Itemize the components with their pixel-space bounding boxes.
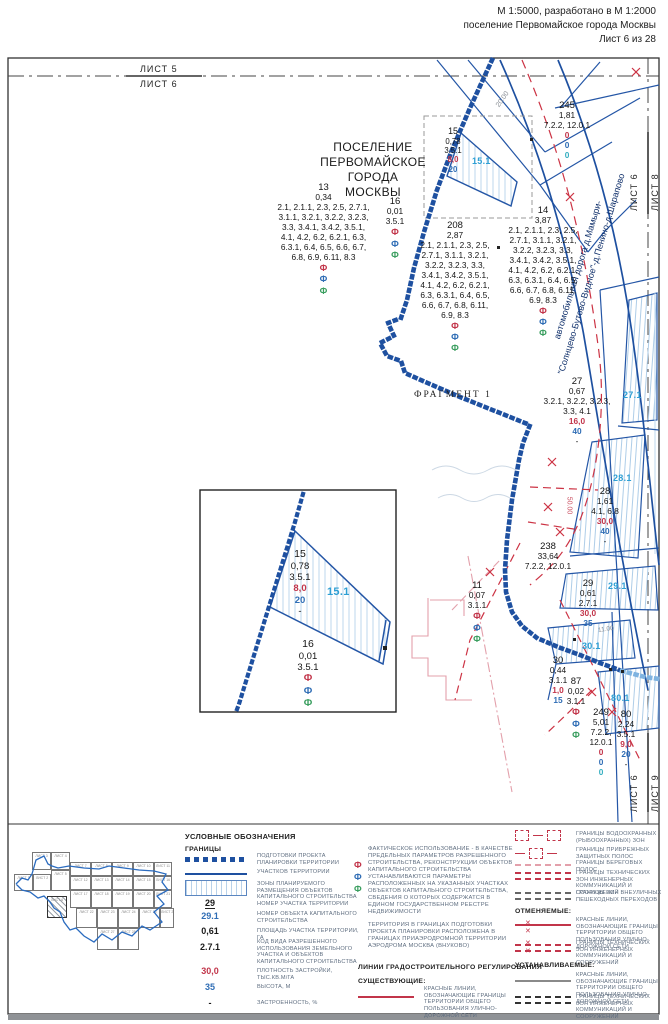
sheet-index-cell: ЛИСТ 23 [97,908,118,928]
sheet-index-cell: ЛИСТ 13 [91,876,112,890]
sheet-index-cell: ЛИСТ 22 [76,908,97,928]
sheet-index-cell: ЛИСТ 20 [133,890,154,908]
legend-symbol-pedestrian-zone [515,892,571,900]
sheet-index-cell: ЛИСТ 8 [91,862,112,876]
sheet-index-cell: ЛИСТ 27 [97,928,118,950]
edge-label-list6-top: ЛИСТ 6 [140,79,178,89]
parcel-245-label: 245 1,81 7.2.2, 12.0.1 0 0 0 [531,100,603,161]
sheet-index-cell: ЛИСТ 6 [47,896,67,918]
legend-symbol-coastal-protect [515,848,571,859]
sheet-index-cell: ЛИСТ 12 [70,876,91,890]
legend-label-plot-number: НОМЕР УЧАСТКА ТЕРРИТОРИИ [257,901,362,908]
zone-29-1-label: 29.1 [608,581,627,591]
sheet-index-map: ЛИСТ 3ЛИСТ 4ЛИСТ 1ЛИСТ 2ЛИСТ 5ЛИСТ 6ЛИСТ… [14,844,176,956]
legend-symbol-red-lines-existing [358,996,414,998]
sheet-index-cell: ЛИСТ 28 [118,928,139,950]
legend-fact-symbol-red: Ф [354,860,362,871]
legend-symbol-shore-strip [515,864,571,866]
legend-symbol-tech-zone-established [515,996,571,1004]
legend-label-tech-zone-established: ГРАНИЦЫ ТЕХНИЧЕСКИХ ЗОН ИНЖЕНЕРНЫХ КОММУ… [576,994,662,1021]
zone-30-1-label: 30.1 [582,641,601,651]
sheet-index-cell: ЛИСТ 3 [32,852,51,870]
legend-panel: ЛИСТ 3ЛИСТ 4ЛИСТ 1ЛИСТ 2ЛИСТ 5ЛИСТ 6ЛИСТ… [8,824,659,1014]
fact-symbol-height: Ф [276,274,371,285]
legend-sample-density: 30,0 [190,966,230,976]
terrain-lines [432,466,516,502]
legend-symbol-tech-zone-existing [515,872,571,880]
parcel-80-label: 80 2,24 3.5.1 9,0 20 - [606,709,646,770]
legend-label-density: ПЛОТНОСТЬ ЗАСТРОЙКИ, ТЫС.КВ.М/ГА [257,968,362,981]
sheet-index-cell: ЛИСТ 19 [112,890,133,908]
sheet-index-cell: ЛИСТ 21 [154,890,172,908]
legend-symbol-territory-plots [185,873,247,875]
sheet-index-cell: ЛИСТ 24 [118,908,139,928]
legend-symbol-tech-zone-cancelled [515,944,571,952]
sheet-index-cell: ЛИСТ 7 [70,862,91,876]
sheet-index-cell: ЛИСТ 11 [154,862,172,876]
legend-sample-use-code: 2.7.1 [190,942,230,952]
parcel-13-label: 13 0,34 2.1, 2.1.1, 2.3, 2.5, 2.7.1, 3.1… [276,182,371,297]
legend-label-object-number: НОМЕР ОБЪЕКТА КАПИТАЛЬНОГО СТРОИТЕЛЬСТВА [257,911,362,924]
plan-sheet: М 1:5000, разработано в М 1:2000 поселен… [0,0,668,1024]
dimension-20: 20.00 [495,90,511,108]
legend-title: УСЛОВНЫЕ ОБОЗНАЧЕНИЯ [185,832,296,841]
sheet-index-cell: ЛИСТ 18 [91,890,112,908]
header-scale: М 1:5000, разработано в М 1:2000 [464,5,656,19]
zone-28-1-label: 28.1 [613,473,632,483]
legend-label-coastal-protect: ГРАНИЦЫ ПРИБРЕЖНЫХ ЗАЩИТНЫХ ПОЛОС [576,847,662,860]
legend-symbol-construction-zone [185,880,247,896]
parcel-14-label: 14 3,87 2.1, 2.1.1, 2.3, 2.5, 2.7.1, 3.1… [503,205,583,340]
legend-sample-height: 35 [190,982,230,992]
legend-cancelled-heading: ОТМЕНЯЕМЫЕ: [515,908,571,915]
legend-existing-heading: СУЩЕСТВУЮЩИЕ: [358,978,426,985]
legend-fact-text: ФАКТИЧЕСКОЕ ИСПОЛЬЗОВАНИЕ - В КАЧЕСТВЕ П… [368,846,513,916]
sheet-index-cell: ЛИСТ 1 [14,874,33,891]
legend-sample-built: - [190,998,230,1008]
sheet-index-cell: ЛИСТ 4 [51,852,70,870]
legend-symbol-water-zone [515,830,571,841]
inset-parcel-16-label: 16 0,01 3.5.1 Ф Ф Ф [286,638,330,711]
legend-symbol-red-lines-cancelled [515,924,571,926]
parcel-11-label: 11 0,07 3.1.1 Ф Ф Ф [457,580,497,645]
zone-15-1-label: 15.1 [472,156,491,166]
legend-established-heading: УСТАНАВЛИВАЕМЫЕ: [515,962,595,969]
legend-fact-symbol-green: Ф [354,884,362,895]
parcel-16-label: 16 0,01 3.5.1 Ф Ф Ф [375,196,415,261]
parcel-28-label: 28 1,61 4.1, 6.8 30,0 40 - [580,486,630,547]
legend-fact-symbol-blue: Ф [354,872,362,883]
legend-label-territory-plots: УЧАСТКОВ ТЕРРИТОРИИ [257,869,362,876]
dimension-50: 50.00 [565,497,572,515]
parcel-29-label: 29 0,61 2.7.1 30,0 35 [568,578,608,629]
inset-parcel-15-label: 15 0,78 3.5.1 8,0 20 - [278,548,322,618]
legend-sample-area: 0,61 [190,926,230,936]
parcel-27-label: 27 0,67 3.2.1, 3.2.2, 3.2.3, 3.3, 4.1 16… [542,376,612,447]
sheet-header: М 1:5000, разработано в М 1:2000 поселен… [464,5,656,47]
fact-symbol-built: Ф [276,286,371,297]
sheet-index-cell: ЛИСТ 16 [154,876,172,890]
legend-sample-plot-number: 29 [205,898,215,909]
legend-label-construction-zone: ЗОНЫ ПЛАНИРУЕМОГО РАЗМЕЩЕНИЯ ОБЪЕКТОВ КА… [257,881,362,901]
legend-symbol-red-lines-established [515,980,571,982]
sheet-index-cell: ЛИСТ 14 [112,876,133,890]
parcel-238-label: 238 33,64 7.2.2, 12.0.1 [523,541,573,572]
sheet-index-cell: ЛИСТ 5 [51,870,70,891]
sheet-index-cell: ЛИСТ 15 [133,876,154,890]
zone-80-1-label: 80.1 [611,693,630,703]
zone-27-1-label: 27.1 [623,390,642,400]
legend-sample-object-number: 29.1 [190,911,230,921]
sheet-index-cell: ЛИСТ 10 [133,862,154,876]
parcel-208-label: 208 2,87 2.1, 2.1.1, 2.3, 2.5, 2.7.1, 3.… [415,220,495,355]
header-settlement: поселение Первомайское города Москвы [464,19,656,33]
fact-symbol-density: Ф [276,263,371,274]
edge-label-list5: ЛИСТ 5 [140,64,178,74]
legend-borders-heading: ГРАНИЦЫ [185,846,221,853]
legend-label-use-code: КОД ВИДА РАЗРЕШЕННОГО ИСПОЛЬЗОВАНИЯ ЗЕМЕ… [257,939,365,966]
legend-label-project-boundary: ПОДГОТОВКИ ПРОЕКТА ПЛАНИРОВКИ ТЕРРИТОРИИ [257,853,362,866]
legend-label-built: ЗАСТРОЕННОСТЬ, % [257,1000,362,1007]
legend-territory-text: ТЕРРИТОРИЯ В ГРАНИЦАХ ПОДГОТОВКИ ПРОЕКТА… [368,922,520,950]
legend-label-pedestrian-zone: ГРАНИЦЫ ЗОН ВНЕУЛИЧНЫХ ПЕШЕХОДНЫХ ПЕРЕХО… [576,890,662,903]
sheet-index-cell: ЛИСТ 26 [160,908,174,928]
legend-symbol-project-boundary [185,857,247,862]
sheet-index-cell: ЛИСТ 9 [112,862,133,876]
header-sheet-number: Лист 6 из 28 [464,33,656,47]
parcel-15-label: 15 0,78 3.5.1 8,0 20 [434,126,472,174]
sheet-index-cell: ЛИСТ 25 [139,908,160,928]
fragment-label: ФРАГМЕНТ 1 [414,390,492,400]
edge-label-list8-right: ЛИСТ 8 [650,135,660,211]
inset-zone-15-1-label: 15.1 [327,586,350,598]
sheet-index-cell: ЛИСТ 2 [33,874,51,891]
legend-label-red-lines-existing: КРАСНЫЕ ЛИНИИ, ОБОЗНАЧАЮЩИЕ ГРАНИЦЫ ТЕРР… [424,986,516,1020]
edge-label-list6-right: ЛИСТ 6 [629,135,639,211]
legend-label-height: ВЫСОТА, М [257,984,362,991]
legend-label-water-zone: ГРАНИЦЫ ВОДООХРАННЫХ (РЫБООХРАННЫХ) ЗОН [576,831,662,844]
edge-label-list9-bottom: ЛИСТ 9 [650,736,660,812]
sheet-index-cell: ЛИСТ 17 [70,890,91,908]
